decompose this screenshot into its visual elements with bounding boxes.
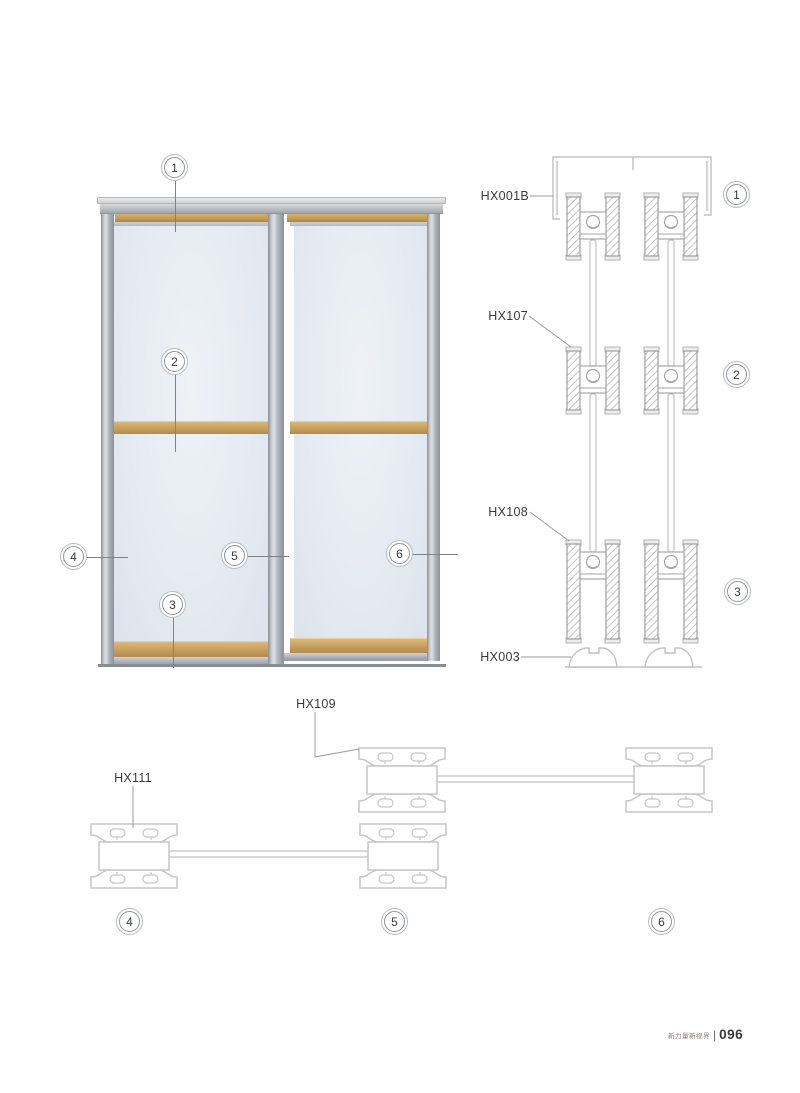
- section-leader-lines: [521, 196, 571, 657]
- label-hx111: HX111: [110, 771, 156, 785]
- label-hx107: HX107: [487, 309, 528, 323]
- callout-plan-5: 5: [381, 908, 408, 935]
- section-detail-1: [566, 193, 698, 260]
- callout-elevation-1: 1: [161, 154, 188, 181]
- back-door-sill: [284, 653, 440, 661]
- back-door-bottom-rail: [290, 638, 427, 653]
- callout-section-3: 3: [724, 578, 751, 605]
- section-detail-3: [566, 540, 698, 643]
- label-hx003: HX003: [479, 650, 520, 664]
- callout-elevation-6: 6: [386, 540, 413, 567]
- plan-leader-lines: [133, 712, 359, 828]
- page-footer: 新力量新视界 | 096: [668, 1027, 743, 1042]
- page-number: 096: [719, 1027, 743, 1042]
- label-hx001b: HX001B: [477, 189, 529, 203]
- front-door-top-strip: [115, 214, 268, 222]
- callout-plan-4: 4: [116, 908, 143, 935]
- callout-elevation-5: 5: [221, 542, 248, 569]
- back-door-right-stile: [427, 208, 440, 661]
- label-hx108: HX108: [487, 505, 528, 519]
- back-door-top-strip: [287, 214, 432, 222]
- vertical-section-drawing: [450, 140, 800, 700]
- back-door-mid-rail: [290, 421, 427, 434]
- meeting-stile: [268, 208, 284, 667]
- front-door-mid-rail: [114, 421, 268, 434]
- bottom-track-section: [565, 648, 702, 667]
- label-hx109: HX109: [293, 697, 339, 711]
- callout-elevation-4: 4: [60, 543, 87, 570]
- horizontal-section-drawing: [60, 680, 740, 920]
- leader-line-6: [413, 554, 458, 555]
- top-track-cap: [97, 197, 446, 204]
- section-detail-2: [566, 347, 698, 414]
- leader-line-1: [175, 181, 176, 232]
- catalog-page: HX001B HX107 HX108 HX003 HX109 HX111 1 2…: [0, 0, 800, 1093]
- footer-slogan: 新力量新视界: [668, 1030, 710, 1040]
- leader-line-5: [248, 556, 289, 557]
- front-door-top-rail: [114, 222, 268, 226]
- callout-elevation-2: 2: [161, 348, 188, 375]
- back-door-top-rail: [290, 222, 427, 226]
- front-door-left-stile: [101, 204, 114, 667]
- leader-line-4: [87, 557, 128, 558]
- leader-line-2: [175, 375, 176, 452]
- section-glass-lines: [590, 240, 674, 552]
- callout-elevation-3: 3: [159, 591, 186, 618]
- top-track-fascia: [100, 204, 443, 214]
- callout-plan-6: 6: [648, 908, 675, 935]
- callout-section-1: 1: [723, 181, 750, 208]
- front-door-bottom-rail: [114, 641, 268, 657]
- floor-line: [98, 664, 446, 667]
- callout-section-2: 2: [723, 361, 750, 388]
- leader-line-3: [173, 618, 174, 668]
- footer-divider: |: [713, 1028, 716, 1042]
